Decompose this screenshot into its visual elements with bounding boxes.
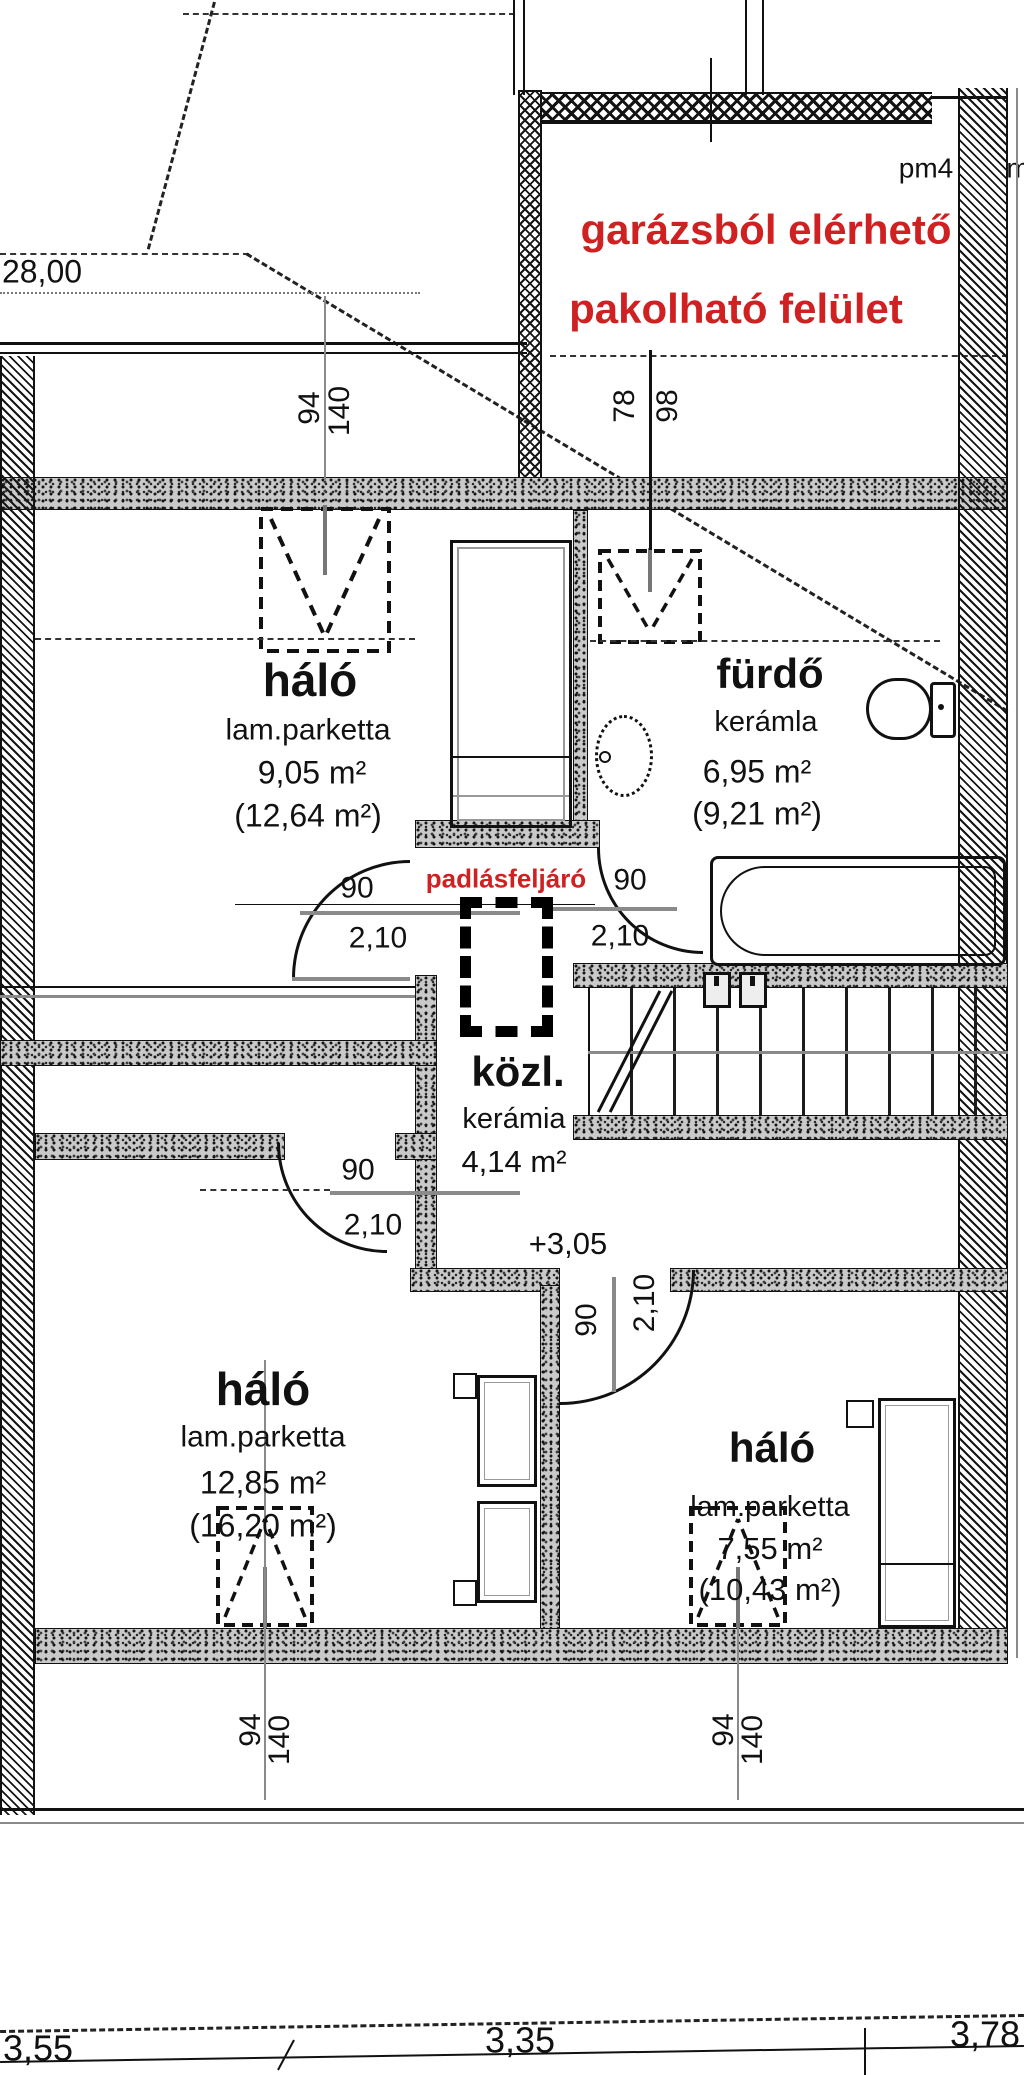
bath-window-stem bbox=[649, 350, 652, 550]
door-left-dim-dash bbox=[200, 1189, 330, 1191]
bathroom-floor: kerámla bbox=[714, 707, 817, 737]
wall-bl-top-right bbox=[395, 1133, 437, 1160]
bottom-dim-tick1 bbox=[277, 2040, 295, 2071]
attic-hatch-square bbox=[460, 897, 553, 1037]
door-top-bedroom-leaf bbox=[292, 977, 410, 981]
top-outer-wall bbox=[0, 477, 1008, 510]
washbasin bbox=[595, 715, 657, 799]
garage-dashed-line bbox=[550, 355, 1008, 357]
top-right-line2 bbox=[745, 0, 747, 95]
hall-name: közl. bbox=[471, 1050, 564, 1094]
stair-post-tick-right bbox=[750, 976, 755, 986]
bed-bottom-left-a bbox=[477, 1375, 537, 1487]
bedroom-right-floor: lam.parketta bbox=[690, 1492, 850, 1522]
bedroom-right-name: háló bbox=[729, 1426, 815, 1470]
bottom-width-2: 3,35 bbox=[485, 2021, 555, 2058]
garage-left-edge-line2 bbox=[523, 0, 525, 95]
bed-bottom-right bbox=[878, 1398, 956, 1628]
left-outer-wall bbox=[0, 356, 35, 1815]
hall-area: 4,14 m² bbox=[461, 1146, 566, 1178]
bedroom-left-area: 12,85 m² bbox=[200, 1466, 326, 1499]
bedroom-top-floor: lam.parketta bbox=[225, 714, 390, 745]
stair-walkline bbox=[588, 1051, 1008, 1054]
bottom-dim-tick2 bbox=[864, 2028, 866, 2075]
dotted-line-left bbox=[0, 292, 420, 294]
landing-bottom-wall-left bbox=[410, 1268, 560, 1292]
bedroom-left-gross: (16,20 m²) bbox=[189, 1509, 337, 1542]
garage-left-edge-line bbox=[513, 0, 515, 95]
bedroom-top-name: háló bbox=[263, 657, 358, 705]
garage-annotation-line2: pakolható felület bbox=[569, 287, 903, 331]
slab-line1 bbox=[0, 342, 527, 345]
headroom-dash-left bbox=[35, 638, 415, 640]
roof-window-bottom-right bbox=[688, 1505, 788, 1628]
bathroom-gross: (9,21 m²) bbox=[692, 797, 822, 830]
top-right-line3 bbox=[762, 0, 764, 95]
bedroomtop-bottom-line1 bbox=[0, 986, 415, 988]
bed-top-bedroom bbox=[450, 540, 572, 828]
dashed-roofline-vertical bbox=[147, 2, 216, 250]
stair-post-tick-left bbox=[714, 976, 719, 986]
dashed-roofline-top bbox=[183, 13, 515, 15]
win-top-width: 94 bbox=[293, 391, 327, 424]
win-top-height: 140 bbox=[323, 386, 357, 436]
floor-plan: 28,00 pm4 m garázsból elérhető pakolható… bbox=[0, 0, 1024, 2075]
win-br-height: 140 bbox=[736, 1715, 770, 1765]
nightstand-br bbox=[846, 1400, 874, 1428]
bottom-slab-line2 bbox=[0, 1822, 1024, 1824]
door-left-width: 90 bbox=[341, 1154, 374, 1185]
door-top-width: 90 bbox=[340, 872, 373, 903]
bedroom-top-gross: (12,64 m²) bbox=[234, 799, 382, 832]
bottom-outer-wall bbox=[35, 1628, 1008, 1664]
bottom-slab-line1 bbox=[0, 1808, 1024, 1811]
door-right-height: 2,10 bbox=[628, 1274, 662, 1332]
unit-label: pm4 bbox=[899, 153, 953, 182]
door-top-height: 2,10 bbox=[349, 922, 407, 953]
door-bath-dim-line bbox=[552, 907, 677, 911]
door-right-dim-line bbox=[612, 1277, 616, 1392]
bottom-width-1: 3,55 bbox=[3, 2029, 73, 2066]
door-bath-width: 90 bbox=[613, 864, 646, 895]
garage-left-wall bbox=[518, 90, 542, 482]
wall-bedroomtop-bath bbox=[573, 510, 588, 848]
win-bl-height: 140 bbox=[263, 1715, 297, 1765]
attic-access-label: padlásfeljáró bbox=[426, 865, 586, 892]
bathroom-name: fürdő bbox=[716, 652, 823, 696]
roof-window-bedroom-top bbox=[257, 505, 393, 655]
stair-bottom-wall bbox=[573, 1115, 1008, 1140]
bedroomtop-bottom-line2 bbox=[0, 995, 415, 998]
wall-h2 bbox=[0, 1040, 437, 1066]
bedroom-right-area: 7,55 m² bbox=[717, 1533, 822, 1565]
win-bath-height: 98 bbox=[651, 389, 685, 422]
hall-floor: kerámia bbox=[462, 1104, 565, 1134]
garage-top-wall bbox=[542, 92, 932, 124]
door-left-height: 2,10 bbox=[344, 1209, 402, 1240]
nightstand-bl-bottom bbox=[453, 1580, 477, 1606]
win-bath-width: 78 bbox=[608, 389, 642, 422]
door-bath-height: 2,10 bbox=[591, 920, 649, 951]
garage-annotation-line1: garázsból elérhető bbox=[580, 208, 951, 252]
headroom-dash-bath bbox=[590, 640, 940, 642]
bathroom-area: 6,95 m² bbox=[703, 755, 811, 788]
bathtub bbox=[710, 856, 1006, 966]
door-right-width: 90 bbox=[570, 1303, 604, 1336]
bottom-width-3: 3,78 bbox=[950, 2015, 1020, 2052]
toilet bbox=[866, 676, 958, 744]
bedroom-left-name: háló bbox=[216, 1366, 311, 1414]
eaves-length-label: 28,00 bbox=[2, 255, 82, 288]
bedroom-top-area: 9,05 m² bbox=[258, 756, 366, 789]
bedroom-left-floor: lam.parketta bbox=[180, 1421, 345, 1452]
top-right-line1 bbox=[710, 58, 712, 142]
slab-line2 bbox=[0, 352, 527, 354]
nightstand-bl-top bbox=[453, 1373, 477, 1399]
level-mark: +3,05 bbox=[529, 1228, 607, 1260]
landing-bottom-wall-right bbox=[670, 1268, 1008, 1292]
hall-left-wall bbox=[415, 975, 437, 1285]
stair-top-wall bbox=[573, 963, 1008, 988]
door-left-dim-line bbox=[330, 1191, 520, 1195]
bedroom-right-gross: (10,43 m²) bbox=[699, 1574, 842, 1606]
bed-bottom-left-b bbox=[477, 1501, 537, 1603]
wall-bl-top-left bbox=[35, 1133, 285, 1160]
wall-bottom-rooms-divider bbox=[540, 1285, 560, 1658]
right-edge-thin-line bbox=[1016, 88, 1018, 1658]
roof-window-bathroom bbox=[597, 548, 703, 645]
